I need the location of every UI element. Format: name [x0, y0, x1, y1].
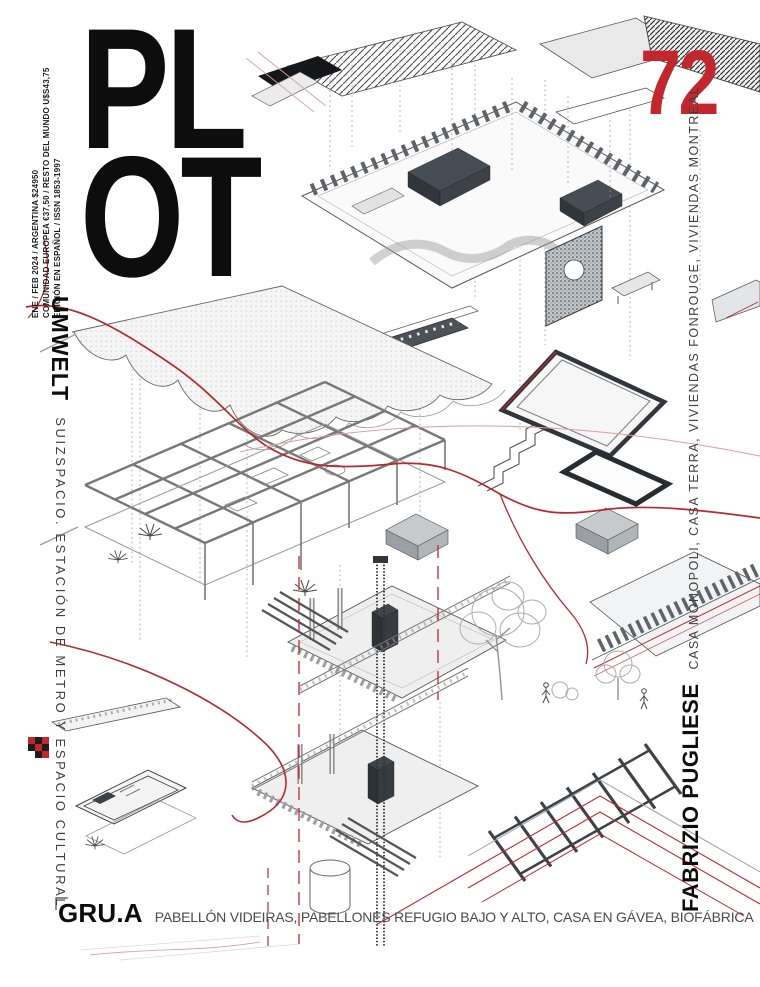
speckled-wall-panel: [546, 226, 660, 326]
construction-assembly-axon: [252, 556, 510, 946]
feature-right: FABRIZIO PUGLIESECASA MONOPOLI, CASA TER…: [678, 86, 704, 912]
feature-bottom: GRU.APABELLÓN VIDEIRAS, PABELLONES REFUG…: [58, 898, 753, 929]
feature-bottom-projects: PABELLÓN VIDEIRAS, PABELLONES REFUGIO BA…: [155, 909, 754, 925]
feature-left-studio: UMWELT: [47, 296, 73, 401]
slatted-building-right: [590, 552, 760, 676]
edition-line-2: COMUNIDAD EUROPEA €37,50 / RESTO DEL MUN…: [41, 67, 52, 318]
feature-right-studio: FABRIZIO PUGLIESE: [678, 683, 703, 912]
feature-left: UMWELTSUIZSPACIO. ESTACIÓN DE METRO Y ES…: [46, 296, 73, 908]
edition-line-1: ENE / FEB 2024 / ARGENTINA $24950: [30, 67, 41, 318]
feature-right-projects: CASA MONOPOLI, CASA TERRA, VIVIENDAS FON…: [687, 86, 701, 670]
edition-line-3: EDICIÓN EN ESPAÑOL / ISSN 1853-1997: [52, 67, 63, 318]
pergola-frame: [489, 744, 681, 881]
edition-info: ENE / FEB 2024 / ARGENTINA $24950 COMUNI…: [30, 67, 63, 318]
feature-bottom-studio: GRU.A: [58, 898, 143, 928]
magazine-cover: PL OT 72 ENE / FEB 2024 / ARGENTINA $249…: [0, 0, 760, 987]
magazine-logo: PL OT: [80, 25, 259, 281]
logo-line-2: OT: [80, 121, 259, 313]
feature-left-projects: SUIZSPACIO. ESTACIÓN DE METRO Y ESPACIO …: [53, 417, 68, 908]
